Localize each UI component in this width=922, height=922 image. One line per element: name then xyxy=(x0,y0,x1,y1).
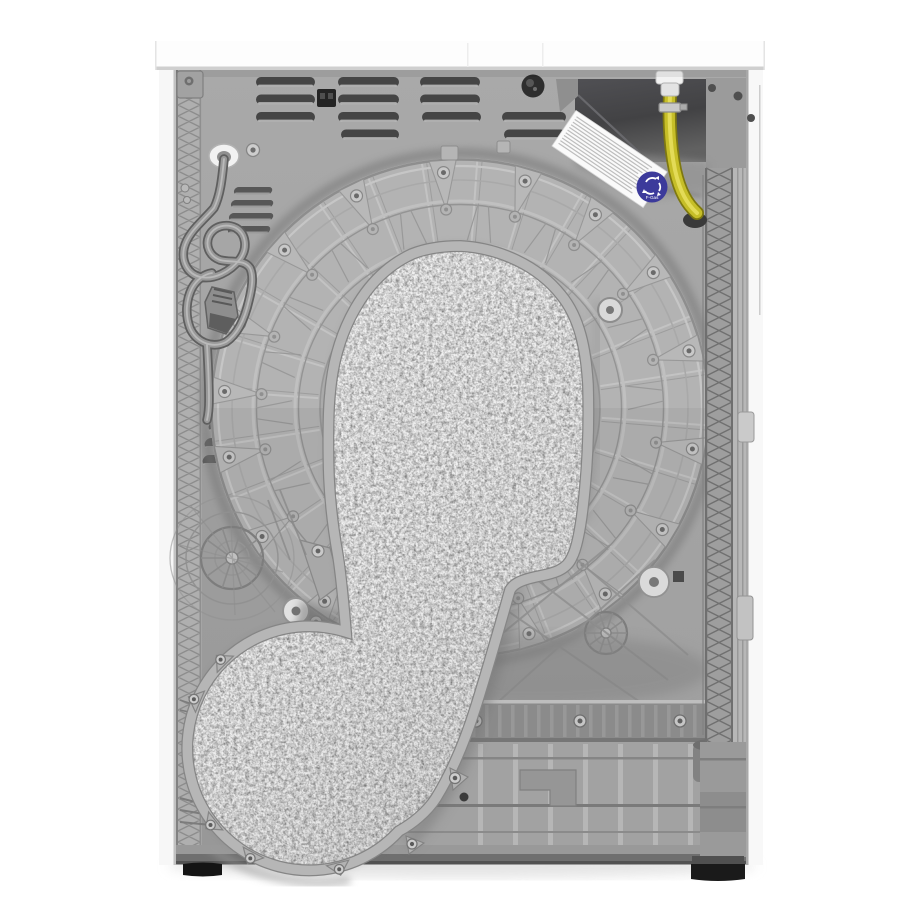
svg-text:F-Gas: F-Gas xyxy=(646,195,659,200)
